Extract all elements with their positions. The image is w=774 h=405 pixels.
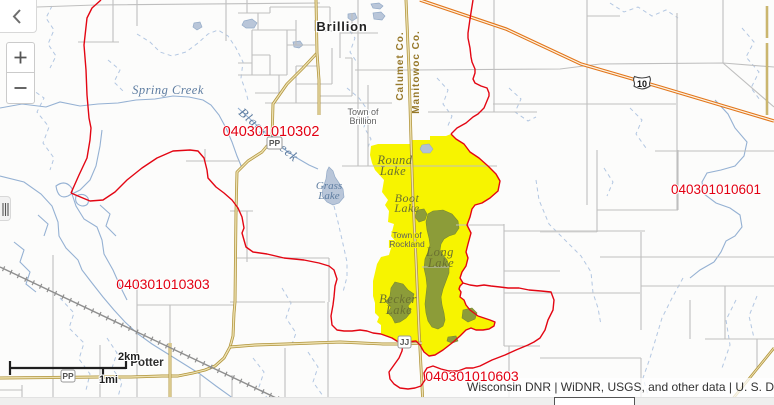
svg-text:Lake: Lake xyxy=(393,201,420,215)
svg-text:040301010603: 040301010603 xyxy=(425,368,519,384)
svg-text:PP: PP xyxy=(62,371,74,381)
svg-text:2km: 2km xyxy=(118,351,140,363)
svg-text:Lake: Lake xyxy=(385,303,412,317)
svg-text:040301010303: 040301010303 xyxy=(116,276,210,292)
svg-text:Lake: Lake xyxy=(379,164,406,178)
svg-text:1mi: 1mi xyxy=(99,374,118,386)
svg-text:JJ: JJ xyxy=(400,337,410,347)
svg-text:Brillion: Brillion xyxy=(316,19,367,34)
svg-text:Brillion: Brillion xyxy=(349,116,376,126)
svg-text:Lake: Lake xyxy=(427,256,454,270)
svg-text:Rockland: Rockland xyxy=(389,239,425,249)
svg-text:040301010601: 040301010601 xyxy=(671,182,761,197)
svg-text:PP: PP xyxy=(269,138,281,148)
svg-text:10: 10 xyxy=(637,79,647,89)
svg-text:Spring Creek: Spring Creek xyxy=(132,83,204,97)
svg-text:Manitowoc Co.: Manitowoc Co. xyxy=(411,30,422,114)
svg-text:Calumet Co.: Calumet Co. xyxy=(395,31,406,100)
svg-text:Lake: Lake xyxy=(317,190,340,202)
